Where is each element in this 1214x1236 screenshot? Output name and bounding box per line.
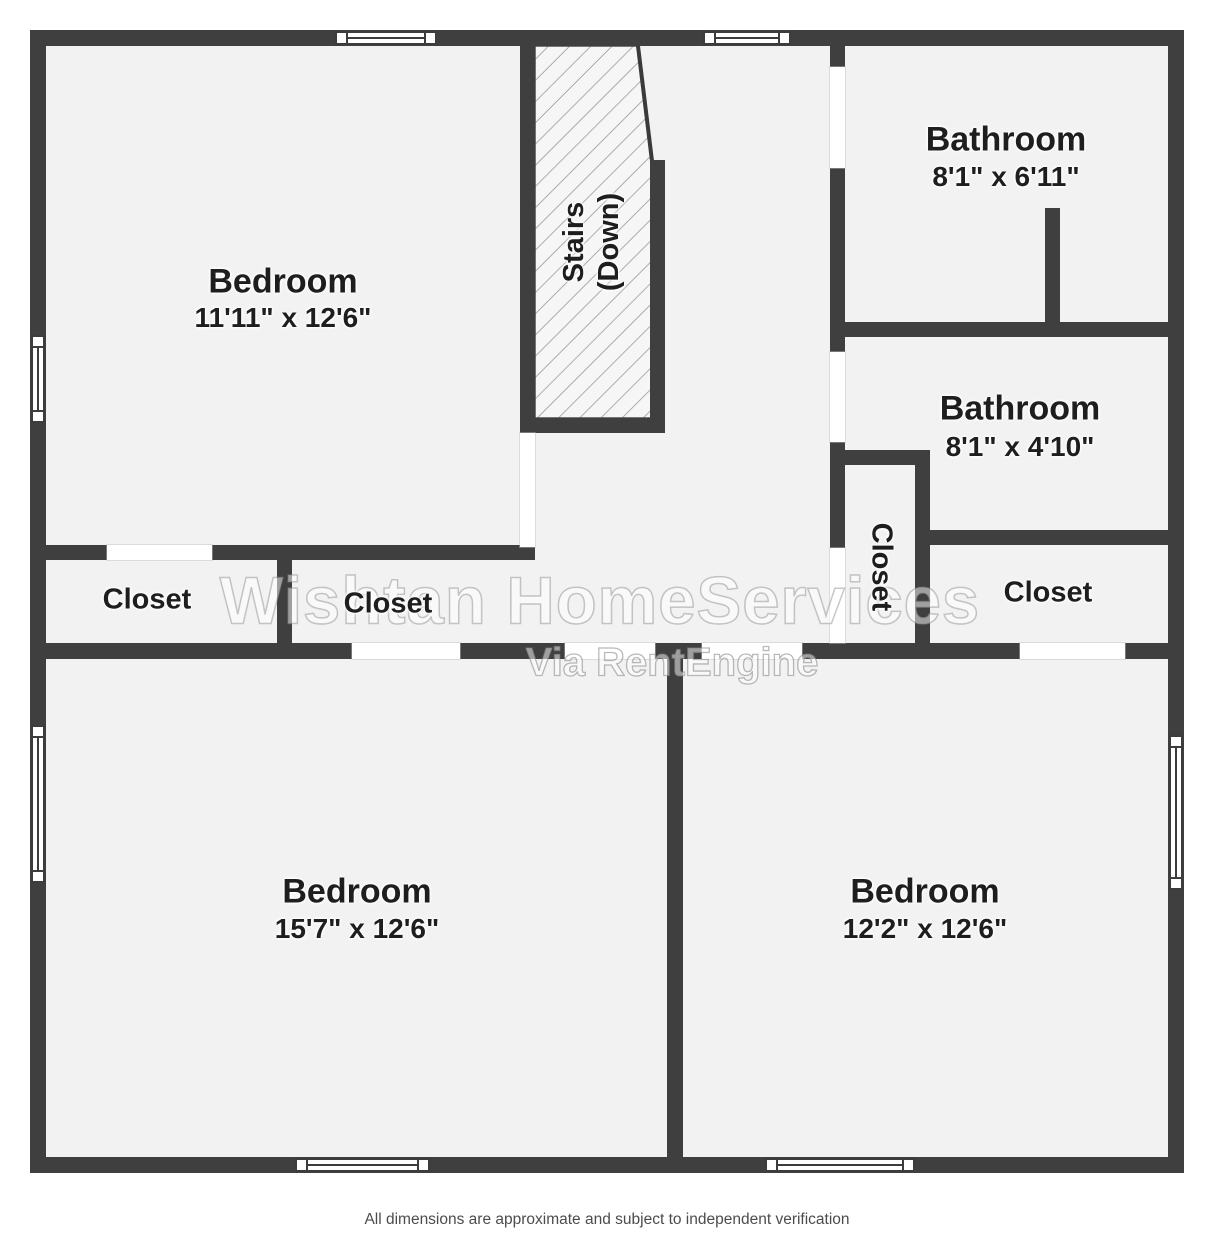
window-top-bedroom1	[335, 31, 437, 45]
wall-exterior-right	[1168, 30, 1184, 1173]
room-label-bedroom-top-left: Bedroom	[208, 263, 357, 302]
door-opening-closet-middle	[352, 643, 460, 659]
watermark-line2: Via RentEngine	[526, 641, 819, 686]
room-label-bedroom-bottom-left: Bedroom	[282, 873, 431, 912]
wall-vcloset-north	[845, 450, 930, 465]
window-bottom-bedroom-br	[765, 1158, 915, 1172]
room-dims-bedroom-bottom-left: 15'7" x 12'6"	[275, 913, 439, 945]
closet-label-middle: Closet	[344, 588, 433, 621]
room-dims-bedroom-top-left: 11'11" x 12'6"	[195, 302, 372, 334]
window-left-bedroom-bl	[31, 725, 45, 883]
window-right-bedroom-br	[1169, 735, 1183, 890]
door-opening-bathroom1	[830, 67, 845, 168]
room-dims-bathroom-mid: 8'1" x 4'10"	[946, 431, 1095, 463]
wall-bathroom-divider	[830, 322, 1184, 337]
room-dims-bathroom-top: 8'1" x 6'11"	[932, 161, 1079, 193]
door-opening-closet-right	[1020, 643, 1125, 659]
closet-label-left: Closet	[103, 584, 192, 617]
wall-stairs-west	[520, 46, 535, 433]
floor-plan: Wishtan HomeServices Via RentEngine Bedr…	[0, 0, 1214, 1236]
wall-exterior-bottom	[30, 1157, 1184, 1173]
wall-exterior-top	[30, 30, 1184, 46]
stairs-label-line1: Stairs	[557, 193, 592, 291]
closet-label-right: Closet	[1004, 577, 1093, 610]
footer-disclaimer: All dimensions are approximate and subje…	[0, 1211, 1214, 1229]
window-top-hallway	[703, 31, 791, 45]
window-bottom-bedroom-bl	[295, 1158, 430, 1172]
door-opening-closet-left	[107, 545, 212, 560]
room-label-bathroom-top: Bathroom	[926, 121, 1087, 160]
wall-stairs-east	[650, 160, 665, 433]
door-opening-bedroom1	[520, 433, 535, 547]
door-opening-bathroom2	[830, 352, 845, 442]
room-label-bedroom-bottom-right: Bedroom	[850, 873, 999, 912]
wall-bedroom-divider	[667, 658, 683, 1158]
wall-exterior-left	[30, 30, 46, 1173]
window-left-bedroom1	[31, 335, 45, 423]
closet-label-vertical: Closet	[865, 523, 898, 612]
room-label-bathroom-mid: Bathroom	[940, 390, 1101, 429]
wall-bathroom1-stub	[1045, 208, 1060, 337]
room-dims-bedroom-bottom-right: 12'2" x 12'6"	[843, 913, 1007, 945]
wall-stairs-south	[520, 418, 665, 433]
stairs-label-line2: (Down)	[592, 193, 627, 291]
stairs-label: Stairs (Down)	[557, 193, 627, 291]
wall-bathroom2-south	[930, 530, 1184, 545]
